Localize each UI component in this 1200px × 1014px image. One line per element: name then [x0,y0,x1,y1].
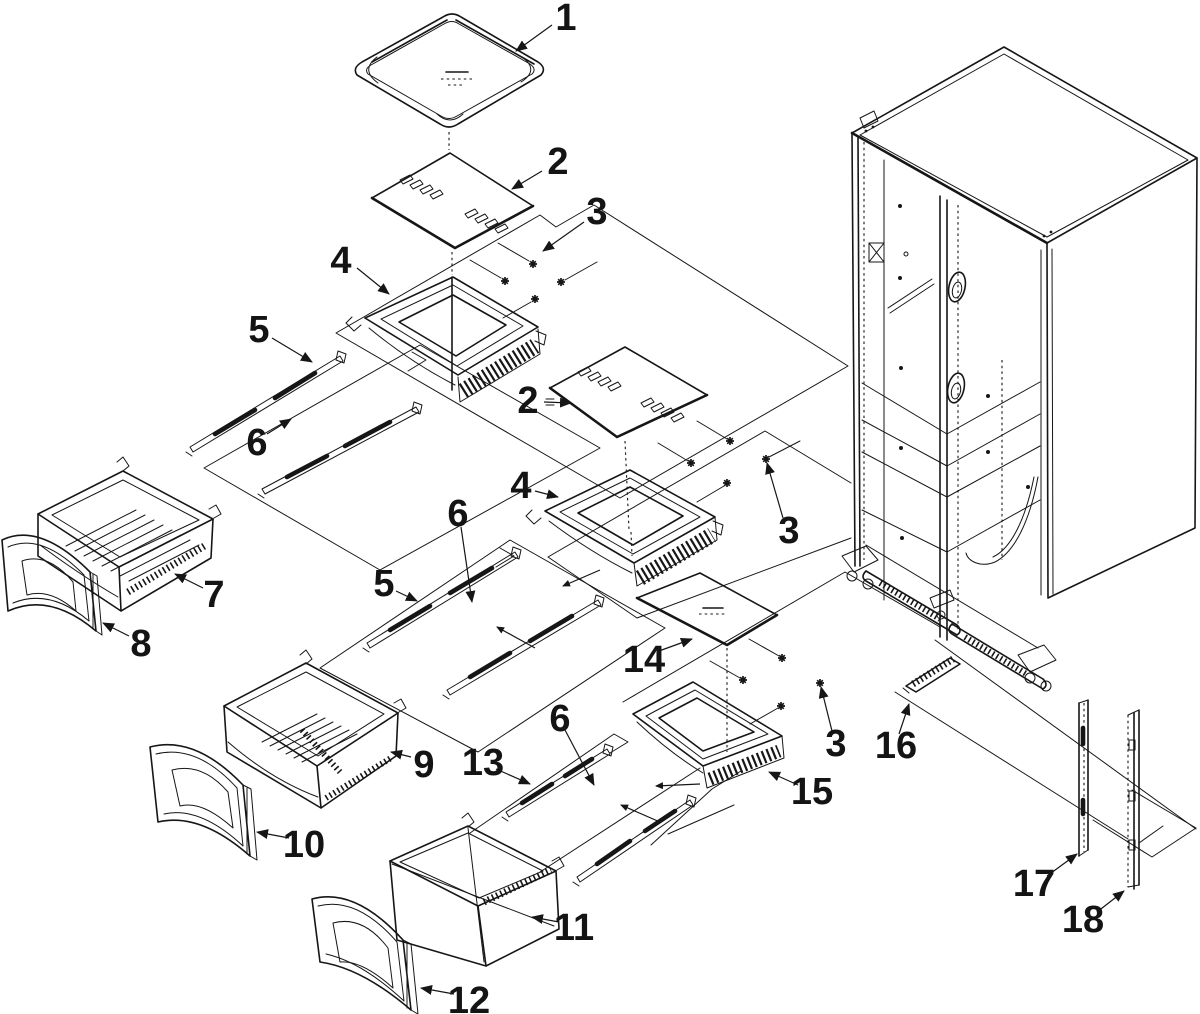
callout-11: 11 [554,907,594,949]
frame-grid-band [640,535,712,578]
rail-dark-segment [522,759,592,803]
plane-outline [336,205,848,498]
callout-13: 13 [462,742,504,784]
rim-texture [484,870,551,902]
callout-labels: 1 2 3 4 5 6 2 4 3 5 6 7 8 9 10 13 6 11 1… [130,0,1104,1014]
rib [84,520,154,556]
callout-8: 8 [130,623,151,665]
freezer-drawer-11 [390,813,564,966]
rail-hook [903,688,909,693]
callout-14: 14 [623,639,665,681]
slide-rail-pair-1 [186,351,422,498]
vent-slot [651,403,664,412]
thumbwheel [946,271,968,304]
shelf-edge-band-left [372,20,447,62]
glass-hatch-mark [441,79,473,85]
callout-2-b: 2 [517,380,538,422]
drawer-front-lip [228,742,318,797]
frame-grid-band [710,751,779,779]
rail-body [506,749,610,817]
cabinet-front-top-edge [852,133,1047,243]
thumbwheel-outer [946,271,968,304]
mullion-foot [930,590,954,608]
cabinet-right-face [1047,158,1197,598]
screw [687,459,695,467]
leader-3a [543,222,584,251]
screw [529,260,537,268]
mount-arrow [621,805,660,822]
screw-hole [899,446,903,450]
shelf-support-lines [862,382,1040,648]
panel-outline [312,897,411,1010]
mount-arrow [563,570,600,586]
rib [111,535,181,571]
basket-frame-4-upper [346,277,546,402]
callout-3-b: 3 [778,510,799,552]
callout-15: 15 [791,771,833,813]
drawer-front-lip [40,545,118,597]
frame-outer-rim [633,682,782,766]
callout-16: 16 [875,725,917,767]
screw-leader [658,421,800,502]
drawer-rim-inner [400,833,543,898]
screw-hole [1026,485,1030,489]
insert-front-edge [372,198,533,248]
rib [102,530,172,566]
leader-4b [535,491,558,497]
plane-outline [895,640,1196,839]
screw-hole [986,394,990,398]
vent-slot [465,209,478,218]
leader-1 [516,25,552,51]
rail-dark-segment [287,422,390,477]
vent-slot [410,180,423,189]
mount-arrow [656,784,700,786]
shelf-outline [355,14,543,127]
rim-hook [117,457,221,518]
frame-lip [549,521,632,573]
thumbwheel [945,372,967,405]
screw [777,702,785,710]
leader-7 [175,574,203,588]
crisper-drawer-7 [38,457,221,611]
screw-hole [904,252,908,256]
callout-7: 7 [203,574,224,616]
wall-screw-holes [898,204,1030,540]
rim-hook [300,650,406,712]
mounting-rail-16 [903,658,960,693]
screw-set-upper [470,243,597,318]
frame-lip [637,722,703,773]
assembly-axis [625,441,632,556]
rail-dark-segment [390,568,492,630]
vent-slot [430,190,443,199]
drawer-diagonal [392,828,554,962]
screw [762,455,770,463]
callout-3-c: 3 [825,723,846,765]
vent-slot [578,367,591,376]
vent-slot [598,377,611,386]
hinge-hole [865,130,868,133]
plane-outline [651,771,741,845]
insert-outline [550,347,707,437]
rail-body [447,600,601,695]
rib [75,515,145,551]
slide-rail-pair-2 [363,547,604,699]
wall-rail [888,279,934,313]
leader-4a [357,268,389,294]
panel-window [333,921,393,988]
screw-hole [898,276,902,280]
screw-set-middle [658,421,800,502]
support-line [862,446,1040,497]
plane-outline [320,540,665,752]
panel-outline [2,535,96,631]
rib [120,540,190,576]
screw [778,654,786,662]
leader-8 [103,623,129,636]
callout-3-a: 3 [586,191,607,233]
leader-9 [391,752,411,757]
cabinet-top-inner [860,54,1188,237]
leader-2b [544,402,571,403]
rim-hook [462,813,564,870]
drawer-rim-inner [237,672,384,756]
rib [66,510,136,546]
screw-hole [898,204,902,208]
panel-window [172,768,233,828]
callout-17: 17 [1013,863,1055,905]
mount-arrow [497,627,535,648]
callout-5-b: 5 [373,563,394,605]
plane-notch [408,352,426,371]
leader-5a [272,338,312,362]
leader-5b [396,591,417,601]
drawer-ribs [66,510,199,581]
thumbwheel-outer [945,372,967,405]
callout-18: 18 [1062,899,1104,941]
screw [501,277,509,285]
diagram-canvas: 1 2 3 4 5 6 2 4 3 5 6 7 8 9 10 13 6 11 1… [0,0,1200,1014]
vent-slot [475,214,488,223]
floor-plane-outlines [470,572,1196,872]
drawer-front-12 [312,897,418,1014]
screw [726,437,734,445]
strip-leader [1139,826,1163,843]
panel-window [22,559,76,611]
panel-inner-line [156,752,243,846]
cabinet-front-left-edge [852,133,860,566]
rib [278,722,333,750]
rib [129,545,199,581]
trim-strip-18 [1128,710,1163,889]
plane-outline [548,431,851,618]
callout-2-a: 2 [547,141,568,183]
rail-body [262,407,419,494]
support-line [862,414,1040,466]
hinge-hole [1050,231,1053,234]
screw-hole [900,536,904,540]
support-line [862,382,1040,434]
shelf-inner-line [367,22,535,119]
screw [816,679,824,687]
callout-6-b: 6 [447,493,468,535]
center-mullion [940,196,947,640]
trim-strip-17 [1079,700,1088,856]
wall-bracket [869,243,884,262]
cabinet-top-face [852,47,1197,243]
drawer-front-8 [2,535,102,635]
vent-slot [608,382,621,391]
callout-6-c: 6 [549,698,570,740]
plane-notch [496,548,514,567]
drawer-rim-inner [52,480,199,557]
callout-9: 9 [413,744,434,786]
vent-slot [671,413,684,422]
drawer-rim [38,471,213,567]
leader-6a [267,419,291,434]
callout-5-a: 5 [248,309,269,351]
screw-hole [899,366,903,370]
basket-15 [633,682,784,788]
screw-leader [470,243,597,318]
screw [531,295,539,303]
rail-outline [906,658,960,692]
insert-outline [372,153,533,248]
crisper-drawer-9 [224,650,406,808]
hinge-hole [872,126,875,129]
slide-rail-pair-3 [502,744,700,886]
rib [93,525,163,561]
callout-1: 1 [555,0,576,39]
hinge-hole [1043,235,1046,238]
screw [739,676,747,684]
refrigerator-cabinet [842,47,1197,691]
drawer-ribs [262,714,357,762]
rail-dark-segment [470,616,572,677]
insert-front-edge [550,388,707,437]
leader-2a [512,171,542,189]
glass-shelf-1 [355,14,543,150]
callout-4-b: 4 [510,465,531,507]
vent-slot [588,372,601,381]
basket-frame-4-middle [526,470,723,586]
callout-10: 10 [283,824,325,866]
vent-slot [641,398,654,407]
vented-insert-2-middle [550,347,707,556]
wall-texture [326,758,391,798]
mullion-texture [958,205,1002,630]
bottom-rail-assembly [842,546,1056,691]
insert-front-edge [637,598,777,645]
exploded-view-drawing: 1 2 3 4 5 6 2 4 3 5 6 7 8 9 10 13 6 11 1… [0,0,1200,1014]
vent-slot [420,185,433,194]
callout-4-a: 4 [330,240,351,282]
screw-hole [986,450,990,454]
drawer-front-10 [150,745,257,860]
vent-slot [400,175,413,184]
callout-12: 12 [448,980,490,1014]
plane-corner [1093,790,1196,857]
callout-6-a: 6 [246,422,267,464]
screw [557,278,565,286]
rail-dark-segment [597,811,675,864]
